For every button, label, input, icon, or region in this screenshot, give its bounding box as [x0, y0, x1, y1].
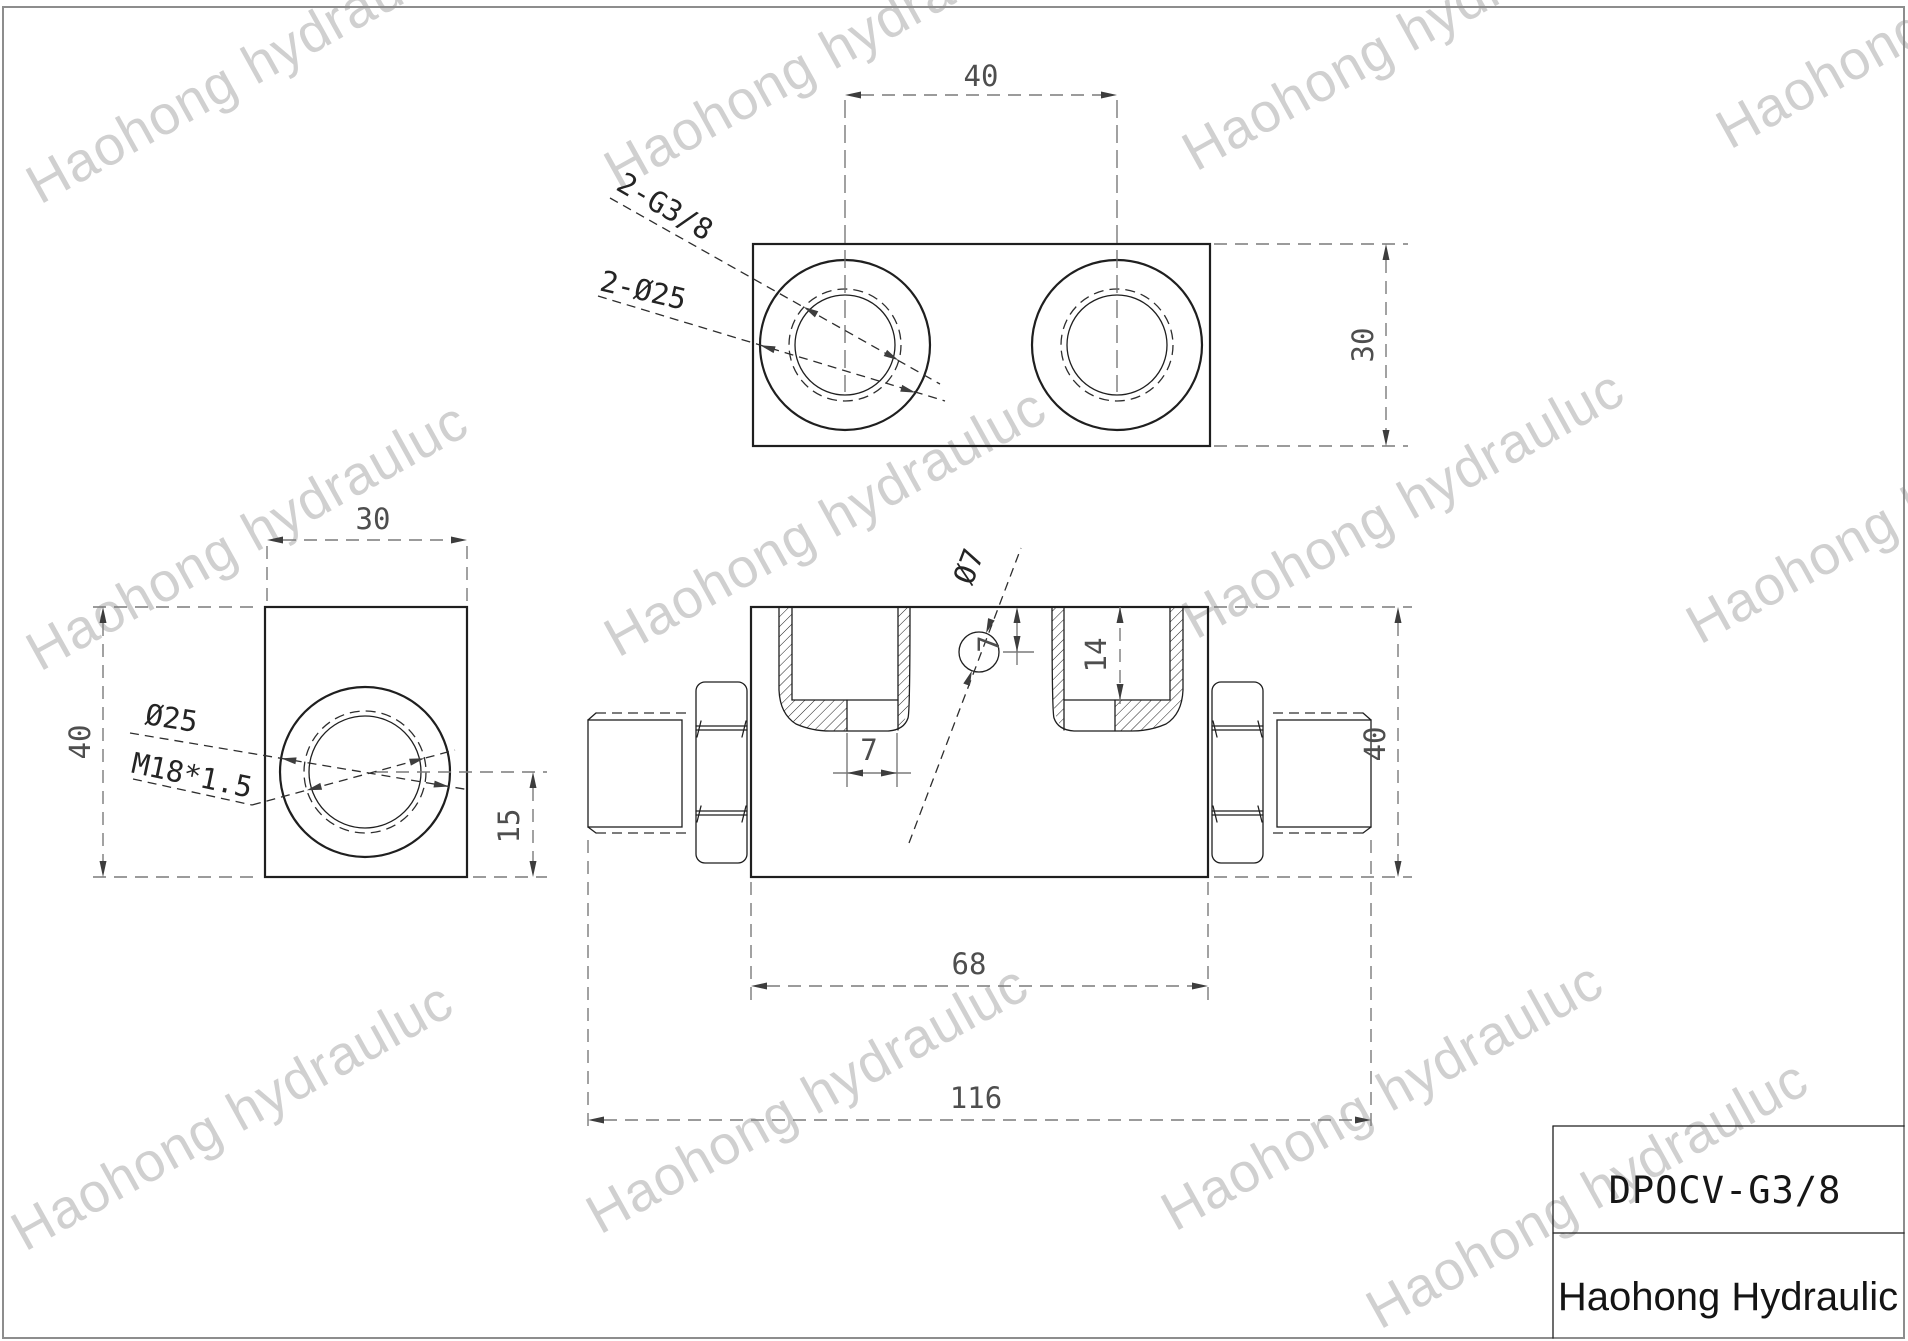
dim-port-spacing-value: 40	[964, 59, 999, 93]
side-thread-label: M18*1.5	[129, 746, 256, 805]
dim-port-center-height: 15	[375, 772, 547, 877]
side-view-outline	[265, 607, 467, 877]
left-end-fitting	[588, 682, 747, 863]
right-hex-nut	[1212, 682, 1263, 863]
right-plug	[1277, 720, 1371, 827]
watermark-text: Haohong hydrauluc	[16, 389, 478, 683]
right-port-section	[1052, 607, 1183, 731]
drawing-sheet: Haohong hydrauluc Haohong hydrauluc Haoh…	[0, 0, 1908, 1341]
watermark-text: Haohong hydrauluc	[1706, 0, 1908, 160]
pilot-hole-label: Ø7	[947, 544, 991, 589]
side-bore-label: Ø25	[143, 697, 200, 739]
dim-pilot-offset-value: 7	[860, 733, 877, 767]
title-company-name: Haohong Hydraulic	[1558, 1275, 1898, 1319]
dim-port-spacing: 40	[845, 59, 1117, 99]
pilot-hole: Ø7	[909, 544, 1021, 843]
watermark-text: Haohong hydrauluc	[594, 0, 1056, 200]
dim-section-height-value: 40	[1358, 727, 1392, 762]
watermark-text: Haohong hydrauluc	[16, 0, 478, 215]
sheet-border	[3, 7, 1904, 1338]
left-plug	[588, 720, 682, 827]
dim-port-depth: 14	[1079, 607, 1124, 712]
dim-top-height-value: 30	[1346, 328, 1380, 363]
watermark-layer: Haohong hydrauluc Haohong hydrauluc Haoh…	[1, 0, 1908, 1340]
dim-overall-length-value: 116	[950, 1081, 1002, 1115]
watermark-text: Haohong hydrauluc	[1676, 362, 1908, 656]
side-view: 30 40 15 Ø25	[63, 502, 547, 877]
dim-top-height: 30	[1214, 244, 1408, 446]
right-end-fitting	[1212, 682, 1371, 863]
left-hex-nut	[696, 682, 747, 863]
cad-canvas: Haohong hydrauluc Haohong hydrauluc Haoh…	[0, 0, 1908, 1341]
watermark-text: Haohong hydrauluc	[1, 969, 463, 1263]
dim-port-depth-value: 14	[1079, 638, 1113, 673]
front-section-view: Ø7 7 14 7	[588, 544, 1412, 1132]
left-port-section	[779, 607, 910, 731]
dim-section-height: 40	[1214, 607, 1412, 877]
label-bore-spec: 2-Ø25	[597, 264, 690, 317]
dim-port-center-height-value: 15	[492, 809, 526, 844]
watermark-text: Haohong hydrauluc	[594, 375, 1056, 669]
dim-body-length-value: 68	[952, 947, 987, 981]
side-thread-leader: M18*1.5	[129, 746, 455, 805]
dim-pilot-depth-value: 7	[972, 635, 1006, 652]
title-model-number: DPOCV-G3/8	[1609, 1169, 1842, 1212]
watermark-text: Haohong hydrauluc	[1172, 0, 1634, 182]
dim-side-width-value: 30	[356, 502, 391, 536]
dim-side-height-value: 40	[63, 725, 97, 760]
dim-pilot-depth: 7	[972, 607, 1034, 665]
label-thread-spec: 2-G3/8	[611, 165, 719, 247]
label-thread-leader: 2-G3/8	[610, 165, 940, 384]
dim-pilot-offset: 7	[833, 733, 911, 787]
